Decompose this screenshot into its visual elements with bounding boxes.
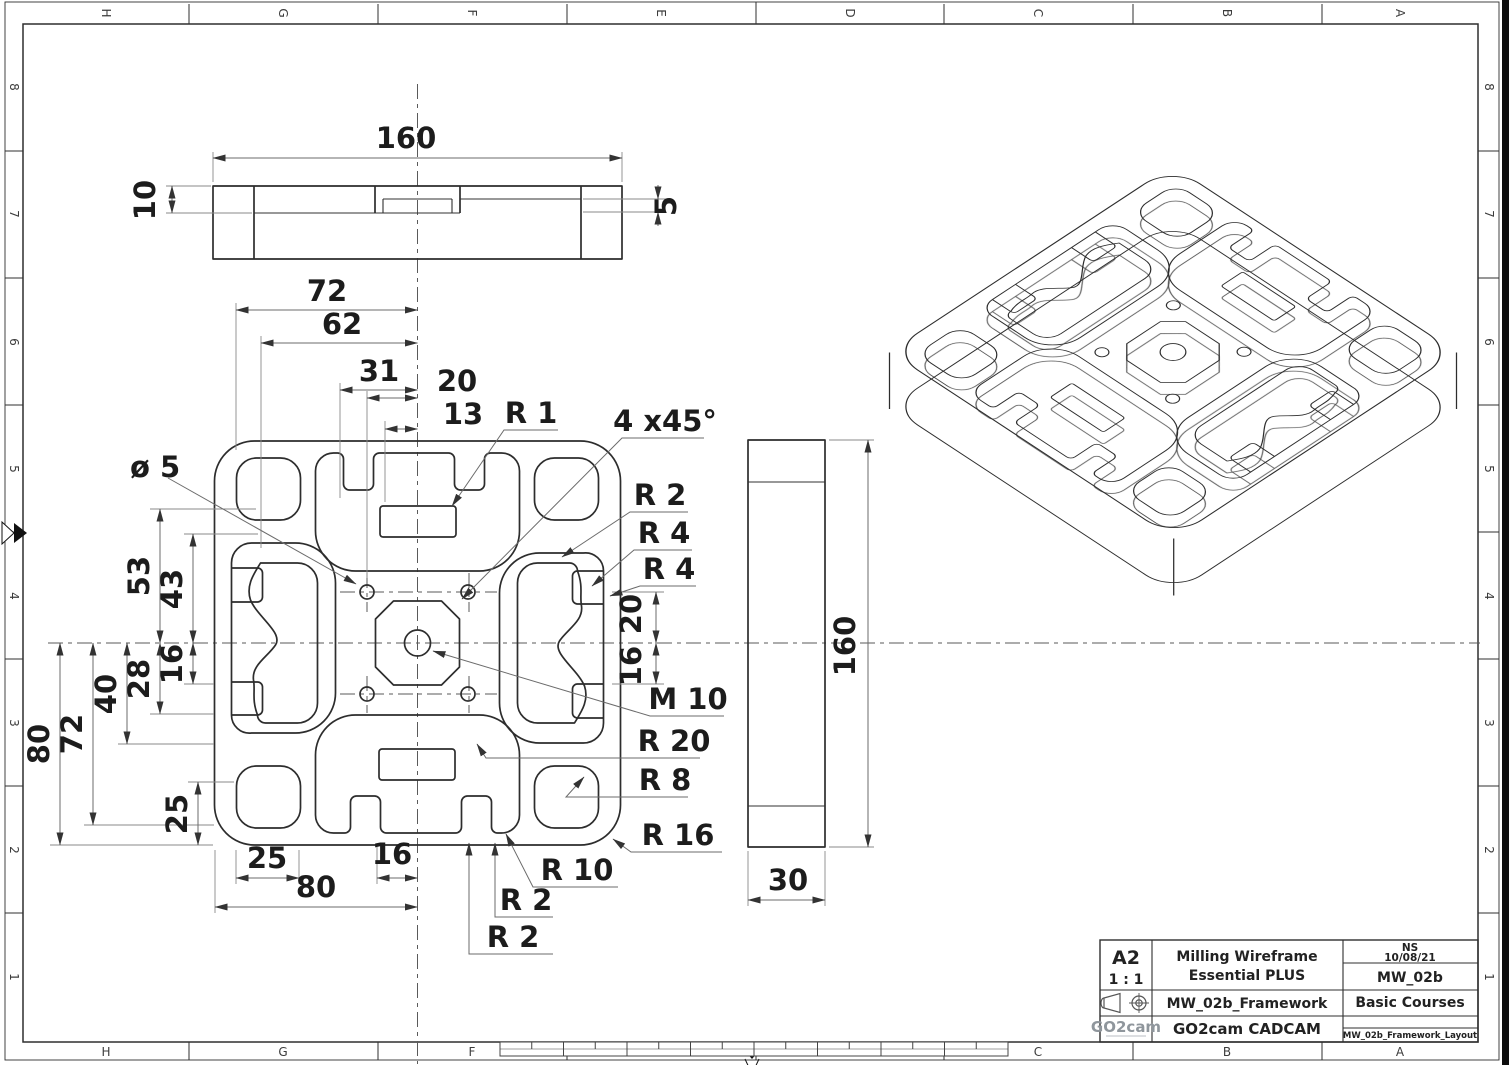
cad-drawing-sheet: H G F E D C B A H G F E D C B A 8 7 6 5 … (0, 0, 1509, 1065)
zone-label: H (99, 8, 113, 17)
zone-label: D (843, 8, 857, 17)
zone-label: G (278, 1045, 287, 1059)
side-view: 160 30 (748, 440, 874, 906)
dim-72-left: 72 (55, 714, 89, 754)
dim-16-bottom: 16 (372, 837, 412, 871)
date: 10/08/21 (1384, 952, 1436, 964)
dim-25-bottom: 25 (247, 841, 287, 875)
zone-ticks (5, 2, 1499, 1060)
projection-symbol-icon (1101, 993, 1149, 1013)
zone-label: 7 (1482, 210, 1496, 218)
reference-ruler (500, 1042, 1008, 1056)
zone-label: 3 (7, 719, 21, 727)
doc-title-line2: Essential PLUS (1189, 968, 1305, 984)
screen-edge-strip (1502, 0, 1509, 1065)
zone-label: C (1031, 9, 1045, 17)
zone-label: A (1393, 9, 1407, 18)
callout-r2-b: R 2 (487, 920, 540, 954)
dim-13-top: 13 (443, 397, 483, 431)
zone-label: 1 (1482, 973, 1496, 981)
zone-label: G (276, 8, 290, 17)
sheet-format: A2 (1112, 947, 1140, 969)
zone-label: F (465, 10, 479, 17)
dim-front-width: 160 (376, 121, 437, 155)
dim-16-right: 16 (614, 646, 648, 686)
callout-r4-a: R 4 (638, 516, 691, 550)
front-view: 160 10 5 (128, 121, 683, 259)
dim-80-bottom: 80 (296, 870, 336, 904)
doc-title-line1: Milling Wireframe (1176, 949, 1317, 965)
callout-r2-top: R 2 (634, 478, 687, 512)
dim-40-left: 40 (89, 674, 123, 714)
zone-label: H (101, 1045, 110, 1059)
dim-43-left: 43 (155, 569, 189, 609)
sheet-scale: 1 : 1 (1109, 972, 1144, 988)
dim-31-top: 31 (359, 354, 399, 388)
zone-label: 4 (7, 592, 21, 600)
zone-label: 8 (7, 83, 21, 91)
callout-dia5: ø 5 (130, 450, 180, 484)
zone-label: 2 (7, 846, 21, 854)
zone-label: A (1396, 1045, 1405, 1059)
zone-label: E (654, 9, 668, 17)
dim-53-left: 53 (122, 556, 156, 596)
side-view-dimensions: 160 30 (748, 440, 874, 906)
callout-m10: M 10 (648, 682, 727, 716)
callout-r1: R 1 (505, 396, 558, 430)
file-name: MW_02b_Framework (1167, 996, 1328, 1012)
zone-label: B (1223, 1045, 1231, 1059)
callout-r2-a: R 2 (500, 883, 553, 917)
dim-80-left: 80 (22, 724, 56, 764)
zone-label: C (1034, 1045, 1042, 1059)
sheet-frame: H G F E D C B A H G F E D C B A 8 7 6 5 … (2, 0, 1509, 1065)
zone-label: 2 (1482, 846, 1496, 854)
callout-chamfer: 4 x45° (613, 404, 717, 438)
zone-letters-top: H G F E D C B A (99, 8, 1407, 18)
zone-label: 5 (1482, 465, 1496, 473)
dim-front-slot: 5 (649, 196, 683, 216)
zone-label: B (1220, 9, 1234, 17)
dim-62-top: 62 (322, 307, 362, 341)
callout-r8: R 8 (639, 763, 692, 797)
callout-r16: R 16 (642, 818, 715, 852)
title-block: A2 1 : 1 Milling Wireframe Essential PLU… (1091, 940, 1478, 1042)
zone-label: 8 (1482, 83, 1496, 91)
brand-logo: GO2cam (1091, 1018, 1161, 1036)
dim-side-width: 30 (768, 863, 808, 897)
callout-r4-b: R 4 (643, 552, 696, 586)
zone-label: 4 (1482, 592, 1496, 600)
dim-20-top: 20 (437, 364, 477, 398)
dim-28-left: 28 (122, 659, 156, 699)
isometric-view (890, 166, 1457, 596)
dim-front-step: 10 (128, 180, 162, 220)
drawing-canvas: H G F E D C B A H G F E D C B A 8 7 6 5 … (0, 0, 1509, 1065)
product-name: GO2cam CADCAM (1173, 1020, 1321, 1038)
zone-label: 7 (7, 210, 21, 218)
course-name: Basic Courses (1355, 995, 1464, 1011)
zone-label: 3 (1482, 719, 1496, 727)
zone-label: 6 (1482, 338, 1496, 346)
dim-20-right: 20 (614, 594, 648, 634)
dim-16-left: 16 (155, 644, 189, 684)
dim-25-left: 25 (160, 794, 194, 834)
plan-dimensions: 72 62 31 20 13 80 72 40 28 16 53 43 25 2… (22, 274, 656, 907)
part-ref: MW_02b (1377, 970, 1443, 986)
plan-extension-lines (50, 303, 664, 913)
callout-r20: R 20 (638, 724, 711, 758)
zone-label: 5 (7, 465, 21, 473)
callout-r10: R 10 (541, 853, 614, 887)
layout-name: MW_02b_Framework_Layout (1343, 1031, 1477, 1041)
front-view-dimensions: 160 10 5 (128, 121, 683, 226)
zone-label: 1 (7, 973, 21, 981)
plan-view: 72 62 31 20 13 80 72 40 28 16 53 43 25 2… (22, 274, 728, 954)
dim-72-top: 72 (307, 274, 347, 308)
zone-label: F (469, 1045, 476, 1059)
dim-side-height: 160 (828, 616, 862, 677)
zone-label: 6 (7, 338, 21, 346)
